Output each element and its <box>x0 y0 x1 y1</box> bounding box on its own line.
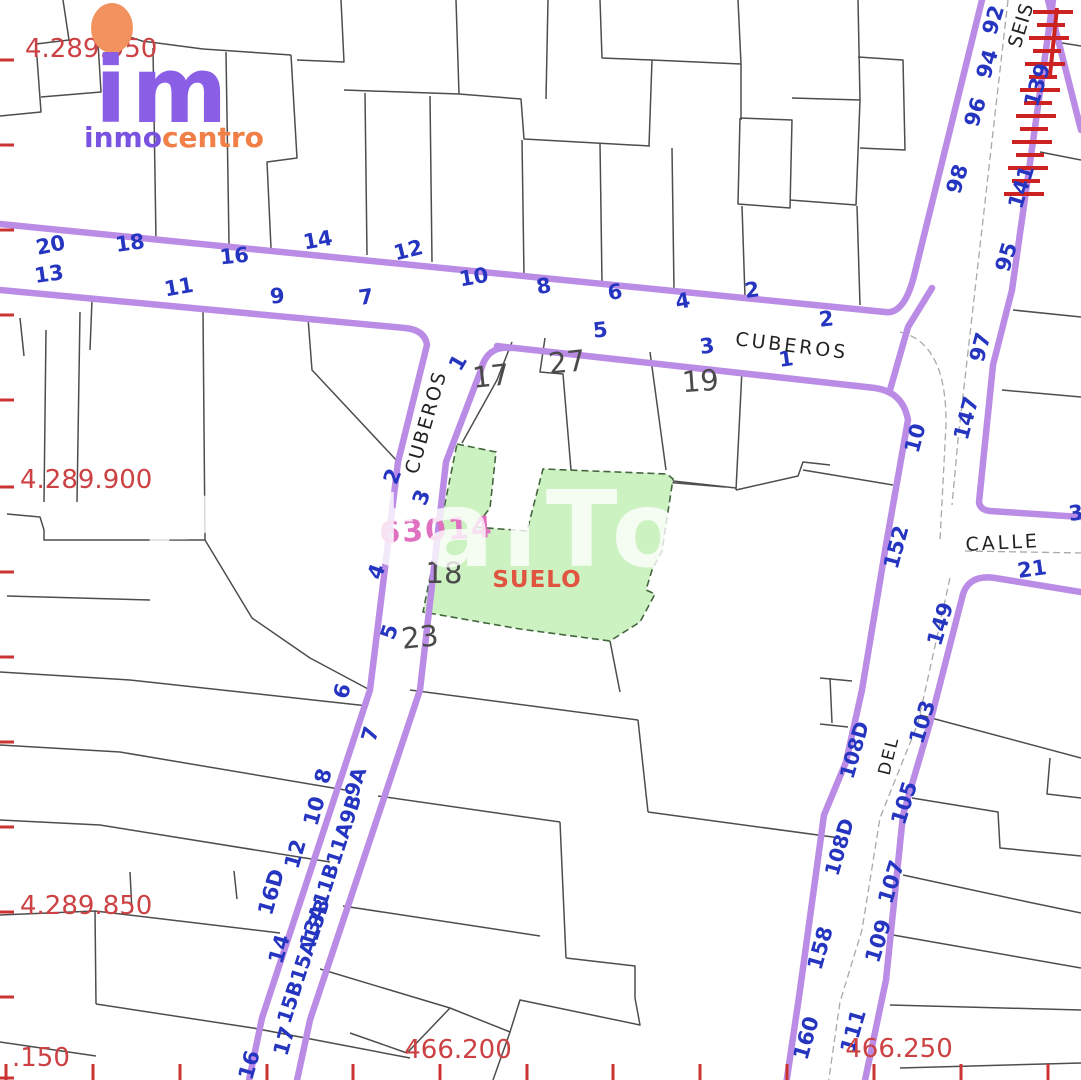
parcel-lines-segment <box>893 935 1081 968</box>
parcel-lines-segment <box>0 820 330 862</box>
parcel-lines-segment <box>90 300 92 350</box>
parcel-number-27: 27 <box>547 343 587 381</box>
house-number-6: 6 <box>329 681 356 702</box>
house-number-2: 2 <box>818 306 835 331</box>
parcel-lines-segment <box>648 812 840 838</box>
street-edges-segment <box>497 346 908 1080</box>
street-name-calle: CALLE <box>965 530 1041 556</box>
parcel-lines-segment <box>365 93 367 255</box>
house-number-3: 3 <box>698 333 716 359</box>
house-number-152: 152 <box>879 523 914 572</box>
parcel-lines-segment <box>858 0 860 100</box>
parcel-lines-segment <box>912 798 1081 856</box>
street-name-seis: SEIS <box>1004 0 1038 50</box>
parcel-lines-segment <box>738 118 792 208</box>
parcel-lines-segment <box>820 678 852 681</box>
parcel-lines-segment <box>600 0 652 146</box>
house-number-14: 14 <box>301 226 334 255</box>
house-number-3: 3 <box>1067 500 1081 526</box>
parcel-lines-segment <box>1002 390 1081 397</box>
parcel-lines-segment <box>459 94 650 146</box>
house-number-9: 9 <box>269 283 286 308</box>
road-centerlines <box>828 0 1081 1080</box>
logo-wordmark: inmocentro <box>84 121 264 154</box>
parcel-lines-segment <box>1040 152 1081 160</box>
parcel-lines-segment <box>638 720 648 812</box>
parcel-lines-segment <box>0 672 368 706</box>
house-number-11: 11 <box>162 273 195 302</box>
house-number-12: 12 <box>391 235 425 265</box>
parcel-lines-segment <box>297 0 344 62</box>
parcel-lines-segment <box>546 0 548 99</box>
house-number-2: 2 <box>743 277 761 303</box>
parcel-lines-segment <box>672 148 674 290</box>
house-number-1: 1 <box>444 350 472 375</box>
house-number-16: 16 <box>218 243 250 270</box>
house-number-20: 20 <box>34 230 68 260</box>
house-number-147: 147 <box>949 394 984 443</box>
parcel-lines-segment <box>790 98 860 205</box>
parcel-lines-segment <box>857 206 860 305</box>
inmocentro-logo: im inmocentro <box>84 3 264 154</box>
parcel-lines-segment <box>320 969 450 1008</box>
logo-wordmark-inmo: inmo <box>84 121 162 154</box>
parcel-lines-segment <box>600 143 602 283</box>
parcel-lines-segment <box>858 57 905 150</box>
parcel-lines-segment <box>736 462 830 490</box>
house-number-18: 18 <box>114 229 146 257</box>
house-number-97: 97 <box>965 330 996 364</box>
parcel-lines-segment <box>890 1005 1081 1010</box>
parcel-lines-segment <box>410 690 638 720</box>
street-edges-segment <box>0 290 427 1080</box>
street-edges-segment <box>890 288 932 390</box>
parcel-lines-segment <box>430 96 432 262</box>
house-number-21: 21 <box>1016 555 1048 583</box>
house-number-96: 96 <box>960 94 991 129</box>
parcel-lines-segment <box>560 822 566 958</box>
parcel-number-17: 17 <box>471 357 511 395</box>
house-number-5: 5 <box>592 317 609 342</box>
house-number-13: 13 <box>33 260 65 288</box>
parcel-lines-segment <box>650 352 666 470</box>
parcel-lines-segment <box>20 318 24 356</box>
house-number-94: 94 <box>972 46 1003 81</box>
parcel-lines-segment <box>652 0 741 64</box>
parcel-number-19: 19 <box>681 363 720 399</box>
parcel-lines-segment <box>522 140 524 276</box>
house-number-10: 10 <box>457 263 490 292</box>
house-number-107: 107 <box>873 857 909 906</box>
house-number-5: 5 <box>376 621 403 642</box>
grid-ticks-left <box>0 60 14 1078</box>
house-number-17: 17 <box>269 1024 300 1059</box>
house-number-16d: 16D <box>253 866 289 917</box>
parcel-lines-segment <box>803 470 893 485</box>
coordinate-label-466-250: 466.250 <box>845 1034 953 1064</box>
parcel-lines-segment <box>343 906 540 936</box>
parcel-lines-segment <box>610 641 620 692</box>
house-number-7: 7 <box>357 724 384 745</box>
house-number-103: 103 <box>904 697 940 746</box>
parcel-lines-segment <box>920 715 1081 758</box>
parcel-lines-segment <box>308 318 398 462</box>
coordinate-label-4-289-900: 4.289.900 <box>20 465 152 495</box>
house-number-98: 98 <box>942 161 973 196</box>
parcel-lines-segment <box>903 875 1081 913</box>
parcel-lines-segment <box>96 1004 253 1028</box>
house-number-16: 16 <box>234 1048 265 1080</box>
parcel-lines-segment <box>0 745 345 790</box>
parcel-number-23: 23 <box>400 618 440 656</box>
watermark: PortalTo <box>140 469 692 591</box>
parcel-lines-segment <box>95 911 96 1004</box>
parcel-lines-segment <box>378 796 560 822</box>
house-number-7: 7 <box>357 284 375 310</box>
parcel-lines-segment <box>736 370 742 490</box>
parcel-lines-segment <box>830 678 832 723</box>
logo-wordmark-centro: centro <box>162 121 264 154</box>
parcel-lines-segment <box>1013 310 1081 317</box>
cadastral-map: 1727191823 63014 20181614121086421311975… <box>0 0 1081 1080</box>
parcel-lines-segment <box>820 724 848 727</box>
coordinate-label-4-289-850: 4.289.850 <box>20 891 152 921</box>
parcel-lines-segment <box>1047 758 1081 798</box>
grid-ticks-bottom <box>6 1064 1048 1080</box>
house-number-12: 12 <box>280 837 311 872</box>
coordinate-label--150: .150 <box>12 1043 70 1073</box>
house-number-8: 8 <box>310 766 337 787</box>
parcel-lines-segment <box>234 871 237 899</box>
cadastral-map-frame: 1727191823 63014 20181614121086421311975… <box>0 0 1081 1080</box>
house-number-108d: 108D <box>835 719 874 782</box>
parcel-lines-segment <box>267 55 297 248</box>
house-number-105: 105 <box>886 778 922 827</box>
parcel-lines-segment <box>344 0 459 94</box>
parcel-lines-segment <box>566 958 635 998</box>
parcel-lines-segment <box>7 596 150 600</box>
coordinate-label-466-200: 466.200 <box>404 1035 512 1065</box>
